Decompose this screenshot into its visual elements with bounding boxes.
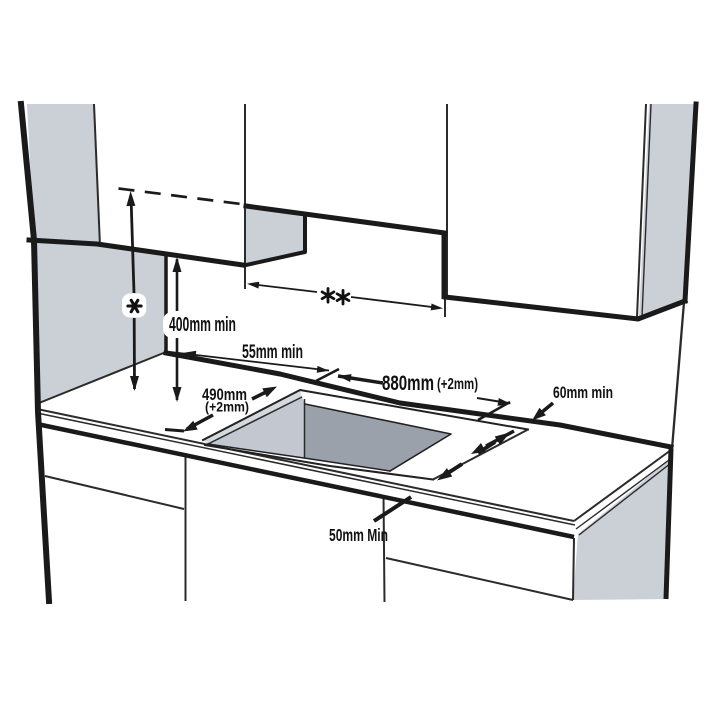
svg-text:55mm min: 55mm min bbox=[242, 342, 303, 363]
svg-text:(+2mm): (+2mm) bbox=[205, 400, 249, 415]
svg-text:880mm: 880mm bbox=[382, 372, 434, 395]
svg-text:50mm Min: 50mm Min bbox=[329, 525, 388, 545]
svg-text:400mm min: 400mm min bbox=[169, 313, 236, 336]
svg-text:60mm min: 60mm min bbox=[553, 383, 613, 402]
svg-text:(+2mm): (+2mm) bbox=[437, 376, 478, 393]
